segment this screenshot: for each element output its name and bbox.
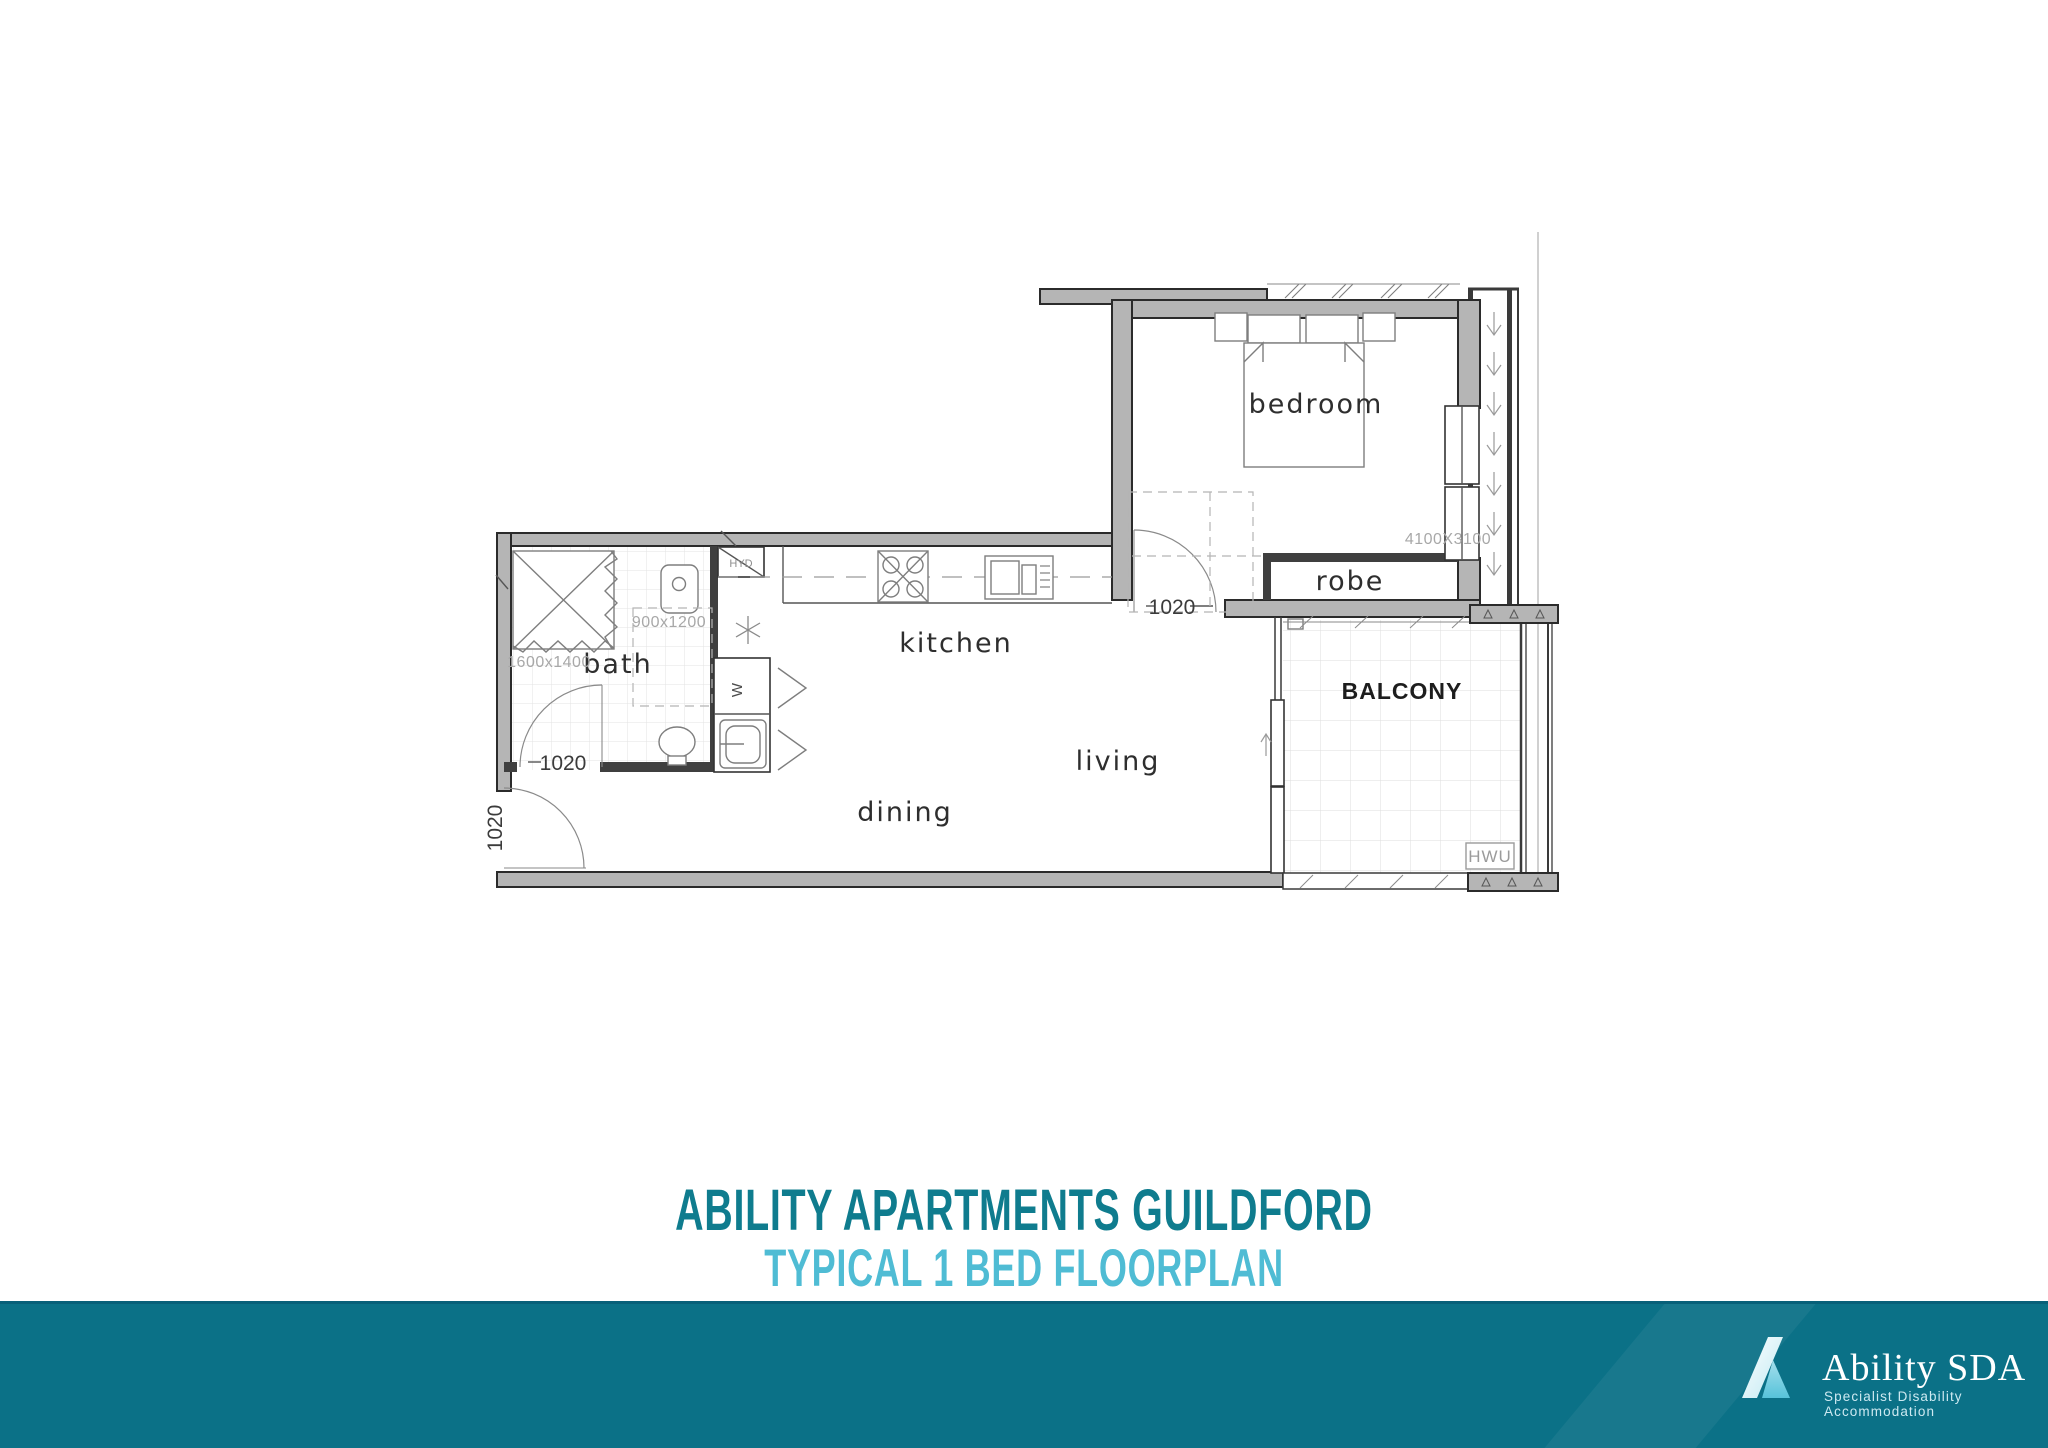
wall-bedroom-left xyxy=(1112,300,1132,600)
wall-bedroom-right-upper xyxy=(1458,300,1480,408)
poster-title: ABILITY APARTMENTS GUILDFORD xyxy=(675,1182,1373,1240)
closet-door-leaf-1 xyxy=(778,668,806,708)
sliding-door-panel-1 xyxy=(1271,700,1284,786)
toilet-cistern xyxy=(668,756,686,765)
bedroom-dimension: 4100X3100 xyxy=(1405,531,1491,548)
balcony-tile-floor xyxy=(1283,620,1520,873)
washer-label: W xyxy=(729,682,746,697)
pillow-left xyxy=(1248,315,1300,343)
ledge-bottom xyxy=(1468,873,1558,891)
top-hatch-marks xyxy=(1285,284,1449,298)
bedroom-label: bedroom xyxy=(1249,389,1384,420)
basin xyxy=(661,565,698,613)
ledge-top xyxy=(1470,605,1558,623)
bath-clearance-dimension: 1600x1400 xyxy=(507,654,591,671)
bath-door-dimension: 1020 xyxy=(540,752,587,775)
shower-dimension: 900x1200 xyxy=(632,614,706,631)
wall-bath-bottom xyxy=(600,762,718,772)
bedside-table-left xyxy=(1215,313,1247,341)
wall-robe-top xyxy=(1263,553,1458,562)
laundry-closet xyxy=(714,658,770,772)
bedroom-door-dimension: 1020 xyxy=(1149,596,1196,619)
wall-strip-top xyxy=(497,533,1132,546)
pillow-right xyxy=(1306,315,1358,343)
wall-bath-bottom-stub xyxy=(504,762,517,772)
floor-waste-symbol xyxy=(736,616,760,644)
kitchen-fixtures xyxy=(718,546,1112,603)
poster-subtitle: TYPICAL 1 BED FLOORPLAN xyxy=(764,1242,1284,1295)
wall-robe-left xyxy=(1263,553,1271,600)
brand-name: Ability SDA xyxy=(1822,1346,2026,1390)
balcony-bottom-band xyxy=(1283,873,1468,889)
service-closets xyxy=(714,547,806,772)
bath-label: bath xyxy=(583,649,652,680)
balcony-label: BALCONY xyxy=(1342,678,1463,704)
hyd-label: HYD xyxy=(729,558,752,570)
closet-door-leaf-2 xyxy=(778,730,806,770)
entry-door-swing xyxy=(504,788,584,868)
kitchen-label: kitchen xyxy=(899,628,1012,659)
bedside-table-right xyxy=(1363,313,1395,341)
ability-sda-logo-icon xyxy=(1736,1332,1812,1402)
sliding-door-panel-2 xyxy=(1271,787,1284,873)
robe-label: robe xyxy=(1316,566,1385,597)
dining-label: dining xyxy=(857,797,953,828)
wall-bottom xyxy=(497,872,1283,887)
living-label: living xyxy=(1076,746,1161,777)
entry-door-dimension: 1020 xyxy=(484,805,507,852)
poster: bedroom robe kitchen living dining bath … xyxy=(0,0,2048,1448)
title-block: ABILITY APARTMENTS GUILDFORD TYPICAL 1 B… xyxy=(0,1182,2048,1295)
door-direction-arrow xyxy=(1261,734,1271,756)
wall-robe-bottom xyxy=(1225,600,1480,617)
toilet-bowl xyxy=(659,727,695,757)
hwu-label: HWU xyxy=(1468,847,1512,866)
brand-tagline: Specialist Disability Accommodation xyxy=(1824,1389,2048,1419)
corridor-wall-right xyxy=(1507,288,1512,605)
